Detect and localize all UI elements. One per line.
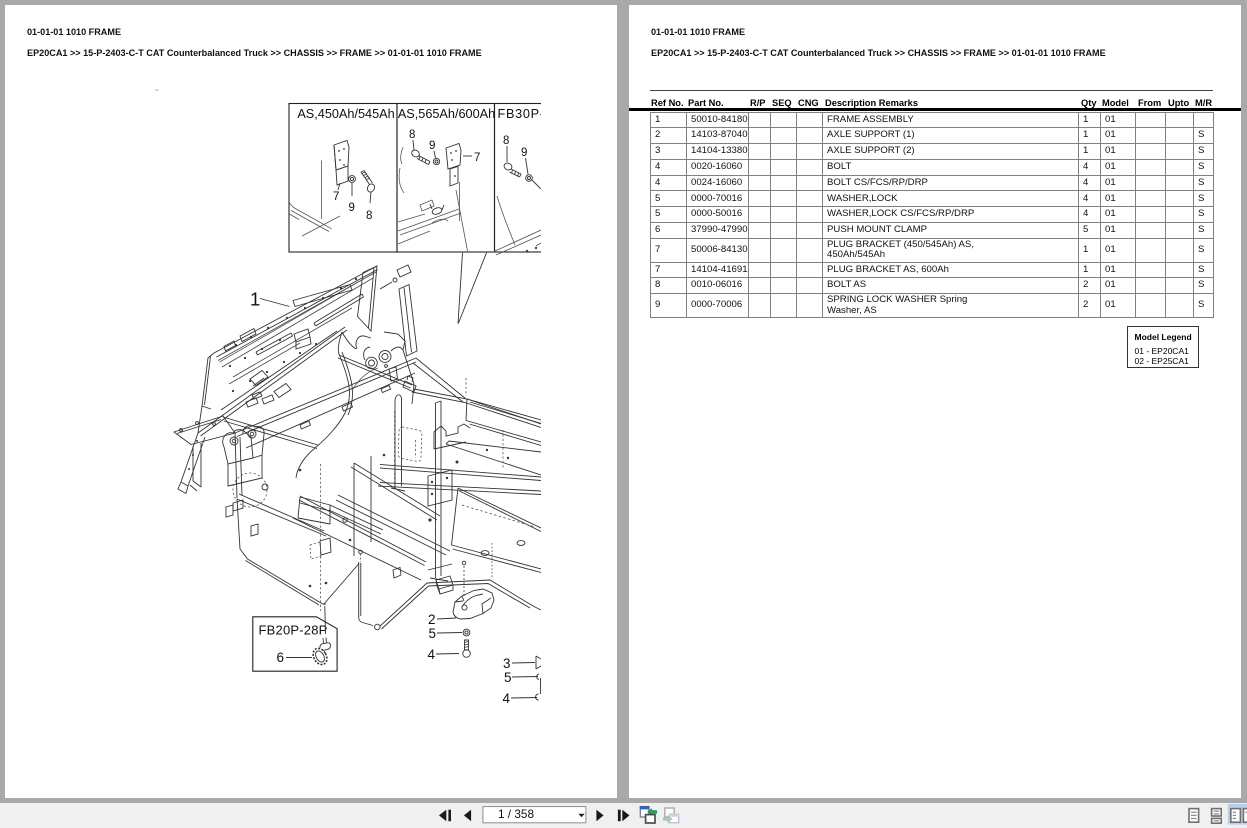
svg-text:7: 7: [474, 152, 480, 164]
svg-text:4: 4: [428, 647, 436, 662]
svg-text:6: 6: [277, 650, 285, 665]
svg-text:7: 7: [333, 191, 339, 203]
svg-text:9: 9: [521, 147, 527, 159]
svg-text:2: 2: [428, 612, 436, 627]
svg-text:1 / 358: 1 / 358: [498, 807, 535, 821]
svg-text:3: 3: [503, 656, 511, 671]
svg-text:5: 5: [429, 626, 437, 641]
svg-text:FB30P-28P: FB30P-28P: [498, 107, 570, 121]
svg-text:9: 9: [429, 140, 435, 152]
svg-text:8: 8: [409, 129, 415, 141]
svg-text:9: 9: [349, 202, 355, 214]
svg-text:AS,450Ah/545Ah: AS,450Ah/545Ah: [297, 107, 394, 121]
svg-text:8: 8: [503, 135, 509, 147]
svg-text:4: 4: [503, 691, 511, 706]
svg-text:5: 5: [504, 670, 512, 685]
svg-text:FB20P-28P: FB20P-28P: [259, 623, 328, 638]
svg-text:AS,565Ah/600Ah: AS,565Ah/600Ah: [398, 107, 495, 121]
svg-text:8: 8: [366, 210, 372, 222]
svg-text:1: 1: [250, 289, 260, 310]
